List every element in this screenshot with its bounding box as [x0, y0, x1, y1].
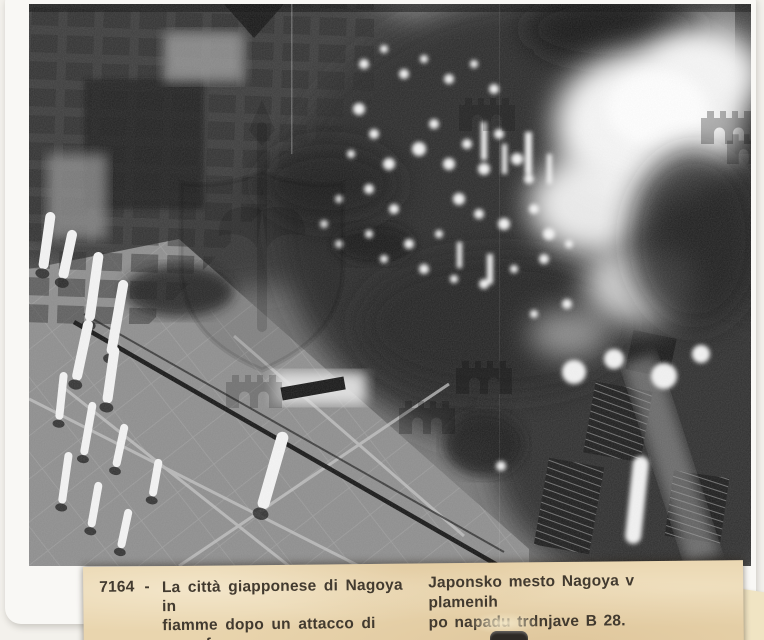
photo-print-paper	[5, 0, 756, 624]
aerial-photograph	[29, 4, 751, 566]
caption-line: Japonsko mesto Nagoya v plamenih	[428, 570, 708, 613]
caption-italian: 7164 - La città giapponese di Nagoya in …	[99, 575, 425, 640]
caption-line: fiamme dopo un attacco di superfor-	[162, 613, 424, 640]
stamp-fragment	[490, 631, 528, 640]
scanned-photo-card: 7164 - La città giapponese di Nagoya in …	[0, 0, 764, 640]
caption-card: 7164 - La città giapponese di Nagoya in …	[83, 560, 744, 640]
photo-number: 7164	[99, 578, 135, 640]
caption-separator: -	[144, 578, 150, 640]
aerial-photo-art	[29, 4, 751, 566]
caption-line: La città giapponese di Nagoya in	[162, 575, 424, 616]
